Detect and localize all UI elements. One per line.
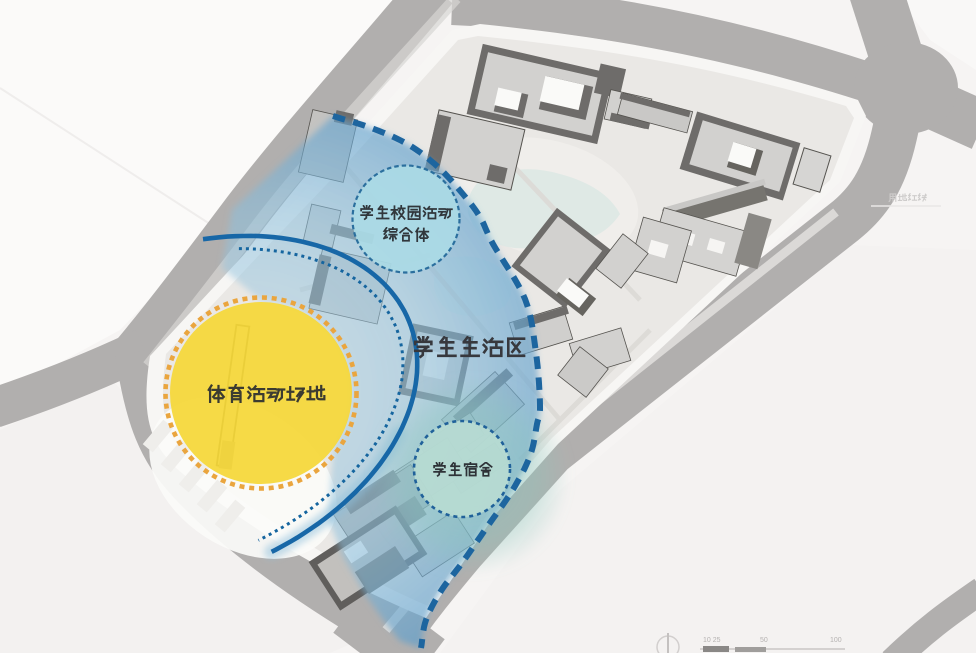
svg-text:100: 100 [830, 637, 842, 644]
svg-text:10 25: 10 25 [703, 637, 721, 644]
svg-text:50: 50 [760, 637, 768, 644]
